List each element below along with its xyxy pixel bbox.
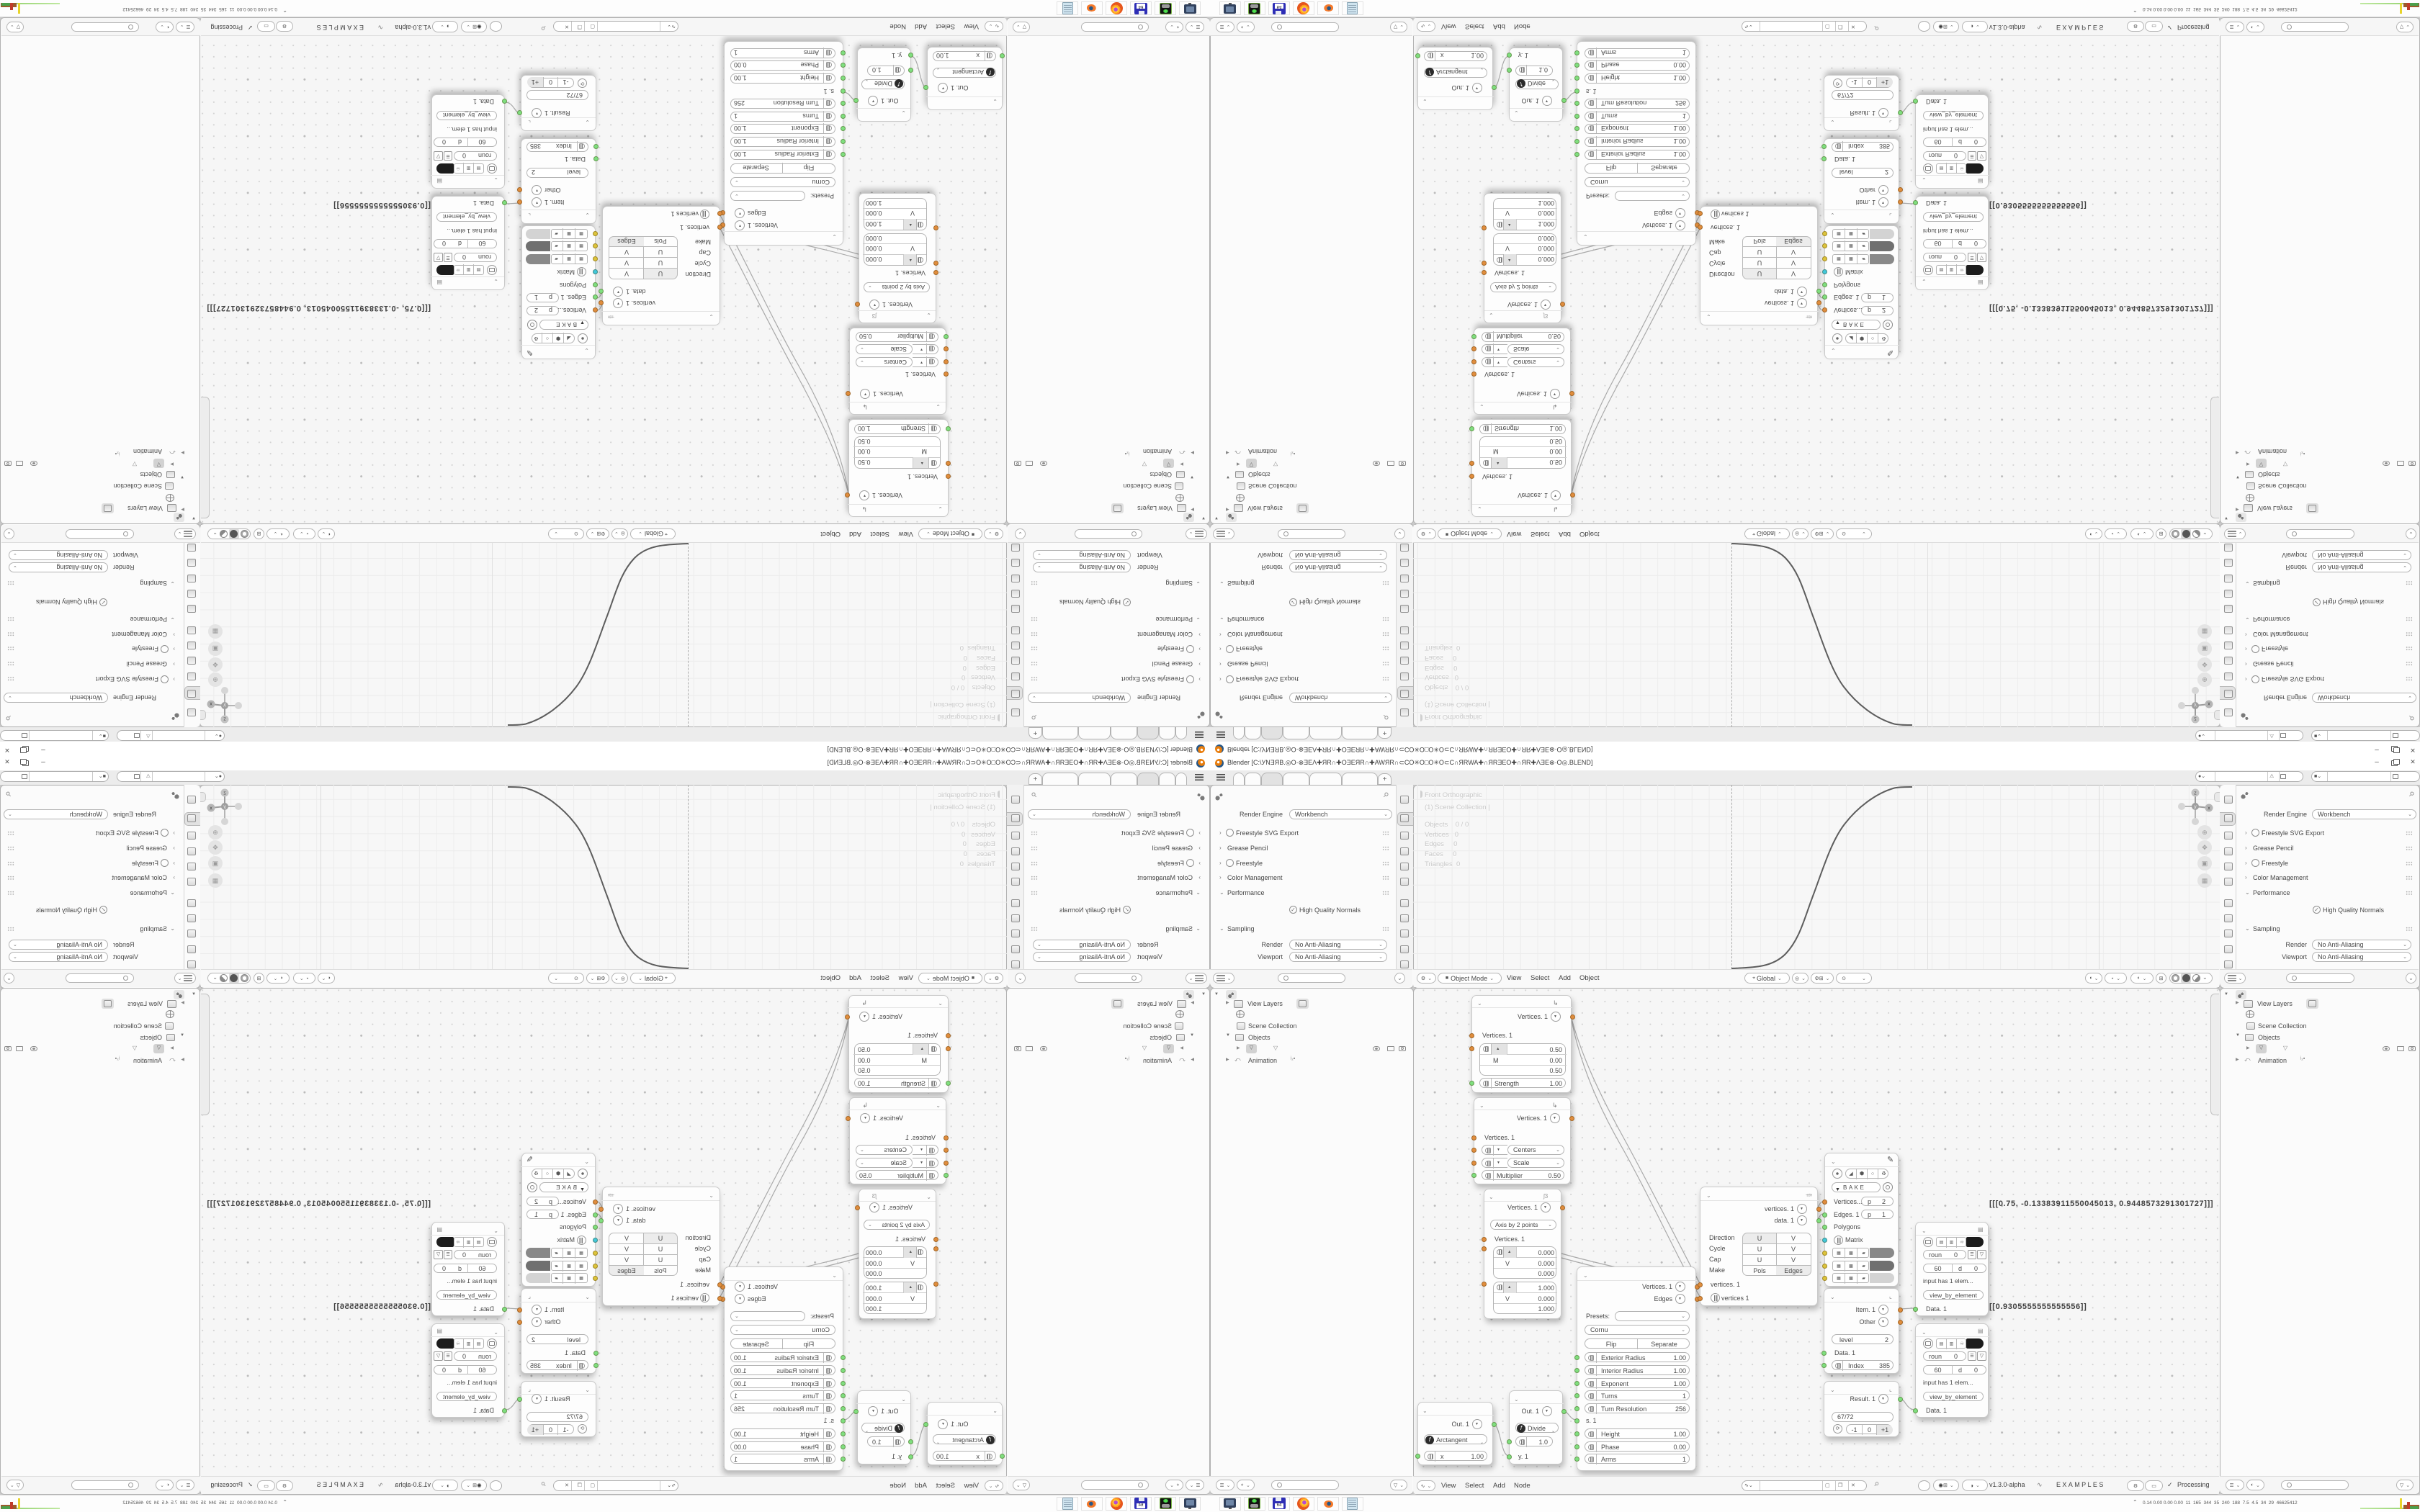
svg-text:z: z (2194, 791, 2197, 796)
svg-text:z: z (223, 791, 226, 796)
svg-text:y: y (223, 703, 226, 708)
svg-text:x: x (2208, 806, 2210, 811)
svg-text:x: x (2208, 701, 2210, 706)
svg-text:z: z (223, 716, 226, 721)
svg-text:y: y (2194, 703, 2197, 708)
svg-text:y: y (223, 805, 226, 810)
svg-text:y: y (2194, 805, 2197, 810)
svg-text:x: x (210, 806, 212, 811)
svg-text:x: x (210, 701, 212, 706)
svg-text:z: z (2194, 716, 2197, 721)
